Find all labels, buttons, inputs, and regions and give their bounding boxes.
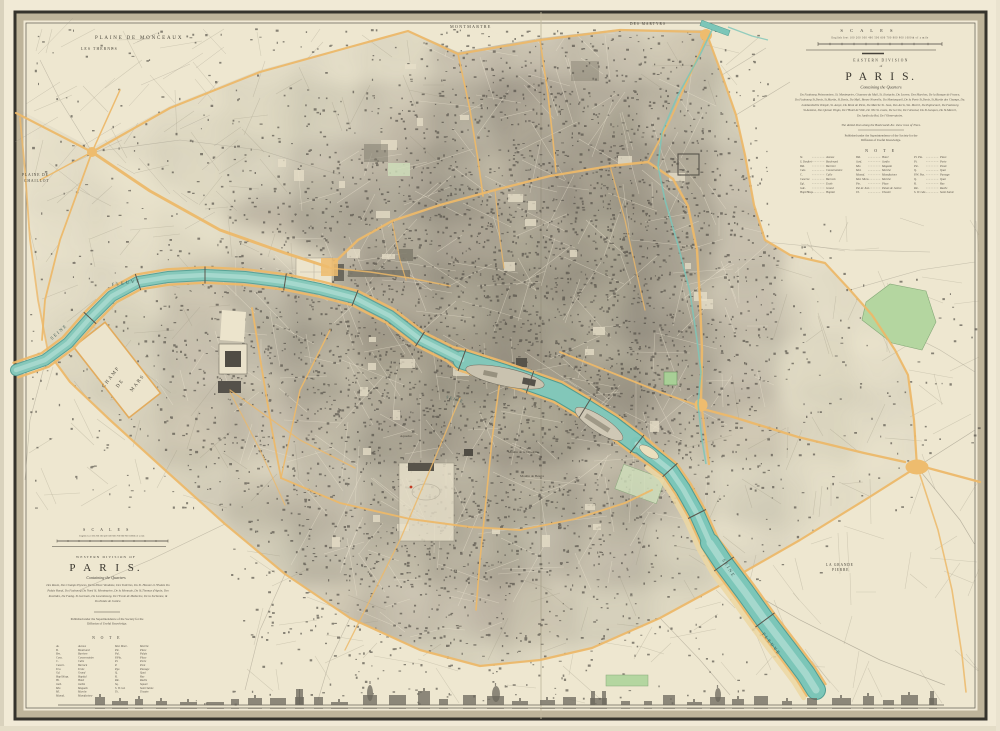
svg-text:Manufactory: Manufactory xyxy=(77,694,93,697)
svg-text:Pal.: Pal. xyxy=(114,653,120,656)
svg-text:Casern.: Casern. xyxy=(56,664,65,667)
svg-text:Ecole: Ecole xyxy=(825,181,833,185)
svg-text:Square: Square xyxy=(140,683,149,686)
svg-text:Porte: Porte xyxy=(139,660,147,663)
svg-text:Ponte: Ponte xyxy=(939,164,947,168)
svg-text:Place: Place xyxy=(939,155,947,159)
svg-text:Ml.: Ml. xyxy=(55,691,60,694)
svg-text:Manud.: Manud. xyxy=(855,173,865,177)
svg-text:Jard.: Jard. xyxy=(856,159,862,163)
svg-text:Passage: Passage xyxy=(139,668,150,671)
svg-text:Hotel: Hotel xyxy=(77,679,84,682)
svg-text:Theatre: Theatre xyxy=(140,691,149,694)
svg-text:Gd.: Gd. xyxy=(56,672,60,675)
svg-text:Magazin: Magazin xyxy=(77,687,88,690)
svg-text:S. W. Gd.: S. W. Gd. xyxy=(115,687,126,690)
svg-text:P.W. Pas.: P.W. Pas. xyxy=(913,173,925,177)
svg-text:Hopital: Hopital xyxy=(825,190,835,194)
svg-text:S C A L E S: S C A L E S xyxy=(83,527,131,532)
svg-text:Q.: Q. xyxy=(115,672,118,675)
svg-text:Barrack: Barrack xyxy=(826,177,836,181)
svg-text:Mol.: Mol. xyxy=(855,168,862,172)
svg-text:Av.: Av. xyxy=(55,645,60,648)
svg-text:Mie.: Mie. xyxy=(55,687,61,690)
svg-text:Barriere: Barriere xyxy=(78,653,88,656)
svg-text:Pont: Pont xyxy=(139,664,146,667)
svg-text:Egl.: Egl. xyxy=(799,181,805,185)
svg-text:Q.: Q. xyxy=(914,177,917,181)
svg-text:LES THERNES: LES THERNES xyxy=(81,47,118,51)
svg-text:Bld.: Bld. xyxy=(856,155,861,159)
svg-text:Moulin de la Citadelle: Moulin de la Citadelle xyxy=(508,450,539,454)
svg-text:Q.: Q. xyxy=(914,168,917,172)
svg-text:Palais: Palais xyxy=(139,653,147,656)
svg-text:Mie.: Mie. xyxy=(855,164,861,168)
svg-text:Grand: Grand xyxy=(826,186,834,190)
svg-text:Pt.: Pt. xyxy=(114,660,118,663)
svg-text:Marche: Marche xyxy=(881,177,892,181)
svg-text:N O T E: N O T E xyxy=(92,636,122,640)
svg-text:Place: Place xyxy=(139,656,147,659)
svg-text:Rue: Rue xyxy=(139,675,145,678)
svg-text:Theatre: Theatre xyxy=(882,190,892,194)
svg-text:Jardin: Jardin xyxy=(78,683,86,686)
svg-text:Hopital: Hopital xyxy=(77,675,87,678)
svg-text:Saint Sainte: Saint Sainte xyxy=(940,190,955,194)
svg-text:Mar. Mure.: Mar. Mure. xyxy=(114,645,128,648)
svg-text:Ecole: Ecole xyxy=(77,668,85,671)
svg-text:Ruelle: Ruelle xyxy=(139,679,148,682)
svg-text:Hl.: Hl. xyxy=(55,679,60,682)
svg-text:CHAILLOT: CHAILLOT xyxy=(24,179,49,183)
svg-text:Place: Place xyxy=(881,181,889,185)
svg-text:Avenue: Avenue xyxy=(825,155,835,159)
svg-text:EASTERN DIVISION: EASTERN DIVISION xyxy=(853,59,908,63)
svg-text:Rle.: Rle. xyxy=(114,679,120,682)
svg-text:Hopl Hosp.: Hopl Hosp. xyxy=(55,675,69,678)
svg-text:PIERRE: PIERRE xyxy=(832,568,849,572)
svg-text:Th.: Th. xyxy=(856,190,860,194)
svg-text:MONTMARTRE: MONTMARTRE xyxy=(450,24,492,29)
svg-text:Pge.: Pge. xyxy=(114,668,120,671)
svg-text:Rue: Rue xyxy=(939,181,945,185)
svg-text:S. W. Gde.: S. W. Gde. xyxy=(914,190,926,194)
svg-text:Containing the Quarters: Containing the Quarters xyxy=(86,575,126,580)
svg-text:Marche: Marche xyxy=(881,168,892,172)
svg-text:Du Palais de Justice.: Du Palais de Justice. xyxy=(94,599,122,603)
svg-text:Bre.: Bre. xyxy=(56,653,61,656)
svg-text:S. Denfert: S. Denfert xyxy=(800,159,812,163)
svg-text:Manufactory: Manufactory xyxy=(881,173,898,177)
svg-text:P A R I S.: P A R I S. xyxy=(845,71,916,83)
svg-text:Pte.: Pte. xyxy=(913,164,919,168)
svg-text:Gde.: Gde. xyxy=(800,186,806,190)
svg-text:WESTERN DIVISION OF: WESTERN DIVISION OF xyxy=(76,555,136,559)
svg-text:Pt.: Pt. xyxy=(913,159,918,163)
svg-text:Bld.: Bld. xyxy=(800,164,805,168)
svg-text:Boulevard: Boulevard xyxy=(78,649,90,652)
svg-text:Barriere: Barriere xyxy=(826,164,837,168)
svg-text:Ecu.: Ecu. xyxy=(55,668,61,671)
svg-text:English feet 100 200 300 40: English feet 100 200 300 400 500 600 700… xyxy=(79,535,144,538)
svg-text:Published under the Superinten: Published under the Superintendence of t… xyxy=(845,134,918,138)
svg-text:B.: B. xyxy=(56,649,59,652)
svg-text:DES MARTYRS: DES MARTYRS xyxy=(630,22,666,26)
svg-text:PLAINE DE: PLAINE DE xyxy=(22,173,49,177)
svg-text:Passage: Passage xyxy=(939,173,950,177)
svg-text:Magazin: Magazin xyxy=(881,164,893,168)
svg-text:Calle: Calle xyxy=(78,660,85,663)
svg-text:R.: R. xyxy=(114,675,118,678)
svg-text:Conservatoire: Conservatoire xyxy=(78,656,95,659)
svg-text:Saint Sainte: Saint Sainte xyxy=(140,687,154,690)
svg-text:Diffusion of Useful Knowledge.: Diffusion of Useful Knowledge. xyxy=(87,622,127,626)
svg-text:Mar. Mure.: Mar. Mure. xyxy=(855,177,869,181)
svg-text:Palais de Justice: Palais de Justice xyxy=(881,186,902,190)
svg-text:C.: C. xyxy=(56,660,59,663)
svg-text:Jardin: Jardin xyxy=(882,159,890,163)
svg-text:LA GRANDE: LA GRANDE xyxy=(826,563,854,567)
svg-text:Cons.: Cons. xyxy=(56,656,63,659)
svg-text:Grand: Grand xyxy=(78,672,86,675)
svg-text:Hotel: Hotel xyxy=(881,155,889,159)
svg-text:Moulin de Beurre: Moulin de Beurre xyxy=(520,474,545,478)
svg-text:Hopl/Hosp.: Hopl/Hosp. xyxy=(799,190,814,194)
svg-text:Boulevard: Boulevard xyxy=(826,159,838,163)
svg-text:Barrack: Barrack xyxy=(78,664,88,667)
svg-text:Published under the Superinten: Published under the Superintendence of t… xyxy=(71,617,144,621)
svg-text:Conservatoire: Conservatoire xyxy=(826,168,843,172)
svg-text:Quai: Quai xyxy=(140,672,146,675)
svg-text:N O T E: N O T E xyxy=(865,148,897,153)
svg-text:English feet 100 200 300: English feet 100 200 300 400 500 600 700… xyxy=(831,37,928,40)
svg-text:Jard.: Jard. xyxy=(56,683,62,686)
svg-text:Diffusion of Useful Knowledge.: Diffusion of Useful Knowledge. xyxy=(861,138,901,142)
svg-text:Pal de Just.: Pal de Just. xyxy=(855,186,870,190)
svg-text:Ruelle: Ruelle xyxy=(939,186,948,190)
svg-text:Marche: Marche xyxy=(77,691,87,694)
svg-text:S C A L E S: S C A L E S xyxy=(840,28,895,33)
svg-text:Pte.: Pte. xyxy=(855,181,861,185)
svg-text:C.: C. xyxy=(800,173,803,177)
svg-text:P.: P. xyxy=(114,664,117,667)
svg-text:PLAINE DE MONCEAUX: PLAINE DE MONCEAUX xyxy=(95,36,183,41)
svg-text:Caserne: Caserne xyxy=(800,177,810,181)
svg-text:P A R I S.: P A R I S. xyxy=(69,562,142,574)
svg-text:Avenue: Avenue xyxy=(77,645,87,648)
svg-text:St.: St. xyxy=(800,155,803,159)
svg-text:Manud.: Manud. xyxy=(55,694,65,697)
svg-text:The dotted lines along the Bou: The dotted lines along the Boulevards &c… xyxy=(841,123,921,127)
svg-text:Calle: Calle xyxy=(826,173,833,177)
svg-text:R.: R. xyxy=(913,181,917,185)
svg-text:Quai: Quai xyxy=(940,168,946,172)
svg-text:Rle.: Rle. xyxy=(913,186,919,190)
svg-text:Th.: Th. xyxy=(115,691,119,694)
svg-text:Marche: Marche xyxy=(139,645,149,648)
svg-text:Porte: Porte xyxy=(939,159,947,163)
svg-text:Pl. Pla.: Pl. Pla. xyxy=(913,155,923,159)
svg-text:Cais.: Cais. xyxy=(800,168,806,172)
svg-text:Quai: Quai xyxy=(940,177,946,181)
svg-text:Containing the Quarters: Containing the Quarters xyxy=(860,85,902,90)
svg-text:Sq.: Sq. xyxy=(115,683,119,686)
svg-text:Aqueduc: Aqueduc xyxy=(400,434,413,438)
svg-text:Place: Place xyxy=(139,649,147,652)
svg-text:Pte.: Pte. xyxy=(114,649,120,652)
svg-text:P.Pla.: P.Pla. xyxy=(114,656,122,659)
